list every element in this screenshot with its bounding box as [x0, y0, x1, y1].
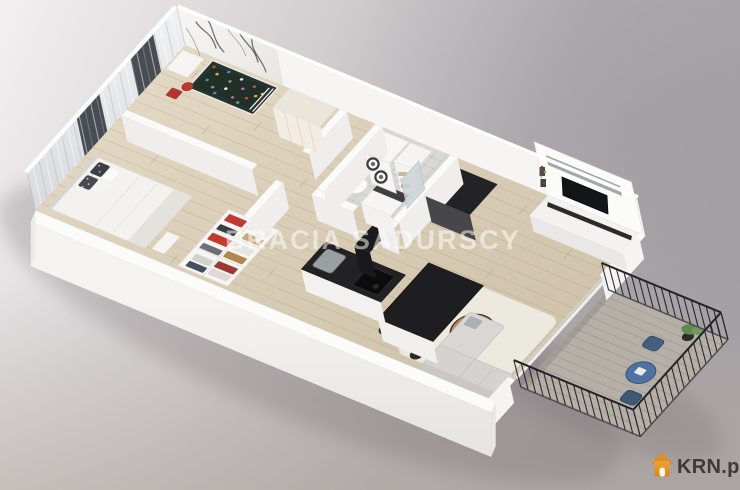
washer-drum-center	[371, 162, 375, 166]
krn-logo-text: KRN.pl	[677, 456, 740, 478]
watermark-text: BRACIA SADURSCY	[225, 225, 521, 255]
bottle	[544, 171, 547, 174]
house-door	[660, 468, 666, 477]
washer-drum-center	[379, 175, 383, 179]
floor-plan-render: BRACIA SADURSCY KRN.pl	[0, 0, 740, 490]
bottle	[543, 182, 546, 185]
bottle	[540, 176, 543, 179]
bottle	[541, 166, 544, 169]
krn-logo: KRN.pl	[651, 453, 740, 479]
floor-plan-canvas: BRACIA SADURSCY KRN.pl	[0, 0, 740, 490]
